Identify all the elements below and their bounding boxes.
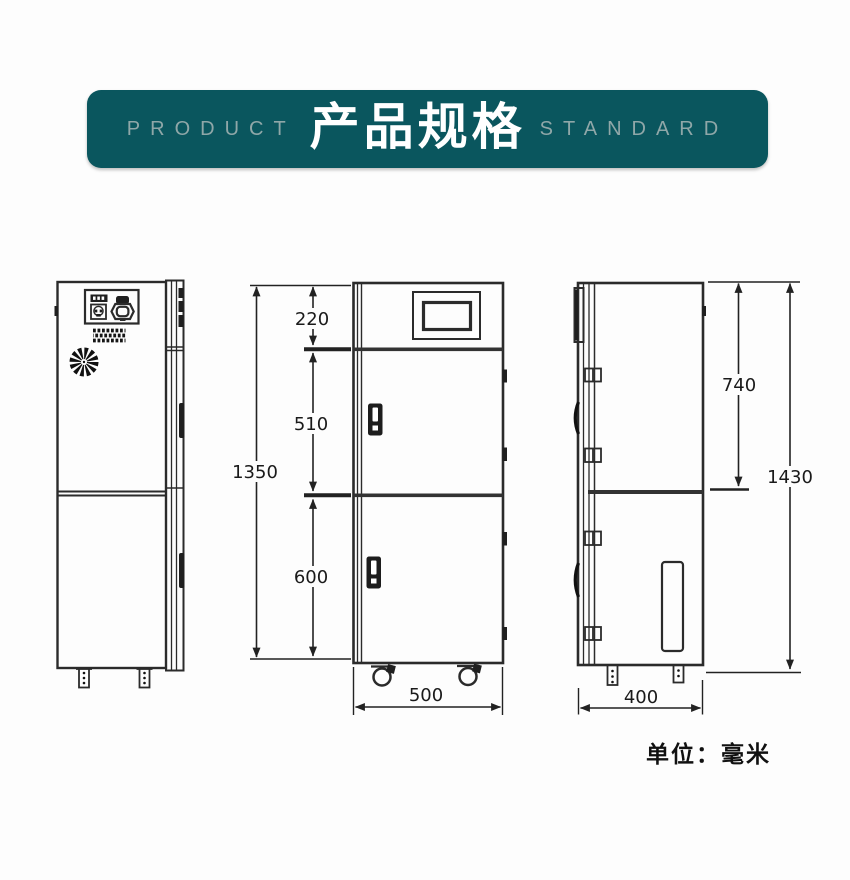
dim-label-220: 220 [295,309,329,330]
dim-label-500: 500 [409,685,443,706]
rear-side-strip [166,281,184,671]
display-window [413,292,480,339]
rear-view [55,281,185,688]
power-socket-icon [91,305,106,320]
dim-label-1350: 1350 [232,462,278,483]
side-cabinet-body [578,283,703,665]
dim-label-1430: 1430 [767,467,813,488]
side-hinges [585,369,601,641]
dim-label-740: 740 [722,375,756,396]
dim-label-510: 510 [294,414,328,435]
product-spec-page: PRODUCT 产品规格 STANDARD [0,0,850,880]
casters [371,664,482,686]
dim-label-400: 400 [624,687,658,708]
dim-label-600: 600 [294,567,328,588]
connector-icon [112,304,134,320]
side-divider [588,490,703,494]
rear-legs [76,668,153,688]
fan-icon [76,354,93,371]
unit-note: 单位：毫米 [646,735,771,769]
side-legs [608,665,684,685]
rear-power-panel [85,290,139,324]
door-handle-upper [368,404,383,436]
vent-grille-icon [93,331,126,341]
front-view [354,283,508,686]
side-view [575,283,707,685]
side-right-hinge-mark [702,306,706,316]
side-dimensions: 740 1430 400 [579,282,815,715]
front-divider-lower [354,494,504,498]
rear-latch-upper [179,403,185,438]
door-handle-lower [367,557,382,589]
side-vent-slot [662,562,683,651]
rear-latch-lower [179,553,185,588]
rear-left-edge-mark [55,306,59,316]
switch-chip-icon [116,296,129,304]
front-divider-upper [354,348,504,352]
